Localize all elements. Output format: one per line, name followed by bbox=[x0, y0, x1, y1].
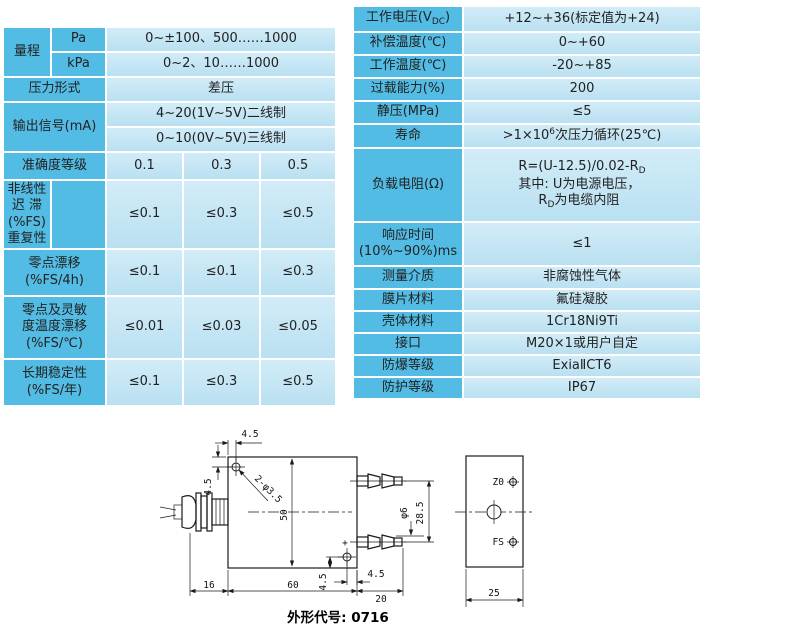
output-signal-label: 输出信号(mA) bbox=[3, 102, 106, 152]
static-pressure-label: 静压(MPa) bbox=[353, 101, 463, 124]
cable-gland bbox=[160, 493, 228, 531]
housing-value: 1Cr18Ni9Ti bbox=[463, 311, 701, 333]
output-signal-value-2: 0~10(0V~5V)三线制 bbox=[106, 127, 336, 152]
side-view: Z0 FS 25 bbox=[455, 456, 535, 607]
nonlinearity-value-3: ≤0.5 bbox=[260, 180, 336, 249]
zero-drift-label: 零点漂移 (%FS/4h) bbox=[3, 249, 106, 296]
op-temp-label: 工作温度(℃) bbox=[353, 55, 463, 78]
interface-label: 接口 bbox=[353, 333, 463, 355]
center-port bbox=[487, 500, 501, 524]
explosion-proof-label: 防爆等级 bbox=[353, 355, 463, 377]
nonlinearity-value-2: ≤0.3 bbox=[183, 180, 260, 249]
stability-label: 长期稳定性 (%FS/年) bbox=[3, 359, 106, 406]
svg-text:4.5: 4.5 bbox=[318, 573, 329, 590]
dim-hole-offset-right: 4.5 bbox=[334, 562, 385, 585]
temp-drift-value-3: ≤0.05 bbox=[260, 296, 336, 359]
stability-value-1: ≤0.1 bbox=[106, 359, 183, 406]
protection-class-value: IP67 bbox=[463, 377, 701, 399]
range-pa-value: 0~±100、500……1000 bbox=[106, 27, 336, 52]
svg-text:50: 50 bbox=[279, 509, 290, 521]
range-unit-kpa: kPa bbox=[51, 52, 106, 77]
temp-drift-value-1: ≤0.01 bbox=[106, 296, 183, 359]
dim-side-width: 25 bbox=[466, 569, 523, 607]
dim-port-length: 20 bbox=[375, 594, 387, 605]
range-kpa-value: 0~2、10……1000 bbox=[106, 52, 336, 77]
supply-voltage-value: +12~+36(标定值为+24) bbox=[463, 6, 701, 32]
fullscale-adjust-label: FS bbox=[493, 537, 505, 548]
dim-hole-offset-left: 4.5 bbox=[203, 445, 231, 496]
body-outline bbox=[228, 457, 357, 568]
accuracy-class-label: 准确度等级 bbox=[3, 152, 106, 180]
range-label: 量程 bbox=[3, 27, 51, 77]
medium-value: 非腐蚀性气体 bbox=[463, 266, 701, 289]
zero-drift-value-3: ≤0.3 bbox=[260, 249, 336, 296]
dim-hole-offset-bottom: 4.5 bbox=[318, 557, 342, 591]
dim-gland-length: 16 bbox=[203, 580, 215, 591]
zero-adjust-label: Z0 bbox=[493, 477, 505, 488]
dim-hole-offset-top: 4.5 bbox=[215, 429, 262, 461]
response-time-value: ≤1 bbox=[463, 222, 701, 266]
outline-drawing: + 4.5 4.5 2-φ3.5 5 bbox=[0, 425, 785, 638]
overload-label: 过载能力(%) bbox=[353, 78, 463, 101]
load-resistance-label: 负载电阻(Ω) bbox=[353, 148, 463, 222]
lifetime-label: 寿命 bbox=[353, 124, 463, 148]
pressure-type-label: 压力形式 bbox=[3, 77, 106, 102]
op-temp-value: -20~+85 bbox=[463, 55, 701, 78]
outline-code-caption: 外形代号: 0716 bbox=[287, 609, 389, 626]
svg-text:28.5: 28.5 bbox=[415, 502, 426, 525]
output-signal-value-1: 4~20(1V~5V)二线制 bbox=[106, 102, 336, 127]
zero-drift-value-2: ≤0.1 bbox=[183, 249, 260, 296]
load-formula-note-2: RD为电缆内阻 bbox=[518, 193, 645, 211]
svg-text:4.5: 4.5 bbox=[367, 569, 384, 580]
temp-drift-label: 零点及灵敏 度温度漂移 (%FS/℃) bbox=[3, 296, 106, 359]
accuracy-value-1: 0.1 bbox=[106, 152, 183, 180]
zero-drift-value-1: ≤0.1 bbox=[106, 249, 183, 296]
interface-value: M20×1或用户自定 bbox=[463, 333, 701, 355]
zero-adjust: Z0 bbox=[493, 476, 519, 488]
housing-label: 壳体材料 bbox=[353, 311, 463, 333]
spec-table-performance: 量程 Pa 0~±100、500……1000 kPa 0~2、10……1000 … bbox=[2, 26, 337, 407]
datasheet-page: 量程 Pa 0~±100、500……1000 kPa 0~2、10……1000 … bbox=[0, 0, 785, 638]
load-formula: R=(U-12.5)/0.02-RD bbox=[518, 159, 645, 177]
comp-temp-label: 补偿温度(℃) bbox=[353, 32, 463, 55]
dim-body-width: 60 bbox=[287, 580, 299, 591]
stability-value-3: ≤0.5 bbox=[260, 359, 336, 406]
dim-body-height: 50 bbox=[279, 459, 292, 566]
lifetime-value: >1×106次压力循环(25℃) bbox=[463, 124, 701, 148]
front-view: + 4.5 4.5 2-φ3.5 5 bbox=[160, 429, 434, 605]
protection-class-label: 防护等级 bbox=[353, 377, 463, 399]
spec-table-electrical: 工作电压(VDC) +12~+36(标定值为+24) 补偿温度(℃) 0~+60… bbox=[352, 5, 702, 400]
fullscale-adjust: FS bbox=[493, 536, 519, 548]
supply-voltage-label: 工作电压(VDC) bbox=[353, 6, 463, 32]
positive-port-mark: + bbox=[342, 538, 348, 549]
explosion-proof-value: ExiaⅡCT6 bbox=[463, 355, 701, 377]
nonlinearity-label: 非线性 迟 滞(%FS) 重复性 bbox=[3, 180, 51, 249]
dim-mounting-holes: 2-φ3.5 bbox=[239, 470, 284, 505]
pressure-port-lower bbox=[350, 535, 406, 549]
overload-value: 200 bbox=[463, 78, 701, 101]
medium-label: 测量介质 bbox=[353, 266, 463, 289]
accuracy-value-2: 0.3 bbox=[183, 152, 260, 180]
static-pressure-value: ≤5 bbox=[463, 101, 701, 124]
accuracy-value-3: 0.5 bbox=[260, 152, 336, 180]
nonlinearity-value-1: ≤0.1 bbox=[106, 180, 183, 249]
svg-text:4.5: 4.5 bbox=[241, 429, 258, 440]
load-formula-note-1: 其中: U为电源电压， bbox=[518, 177, 645, 193]
nonlinearity-label-spacer bbox=[51, 180, 106, 249]
svg-text:25: 25 bbox=[488, 588, 499, 599]
load-resistance-value: R=(U-12.5)/0.02-RD 其中: U为电源电压， RD为电缆内阻 bbox=[463, 148, 701, 222]
svg-text:4.5: 4.5 bbox=[203, 478, 214, 495]
diaphragm-value: 氟硅凝胶 bbox=[463, 289, 701, 311]
pressure-type-value: 差压 bbox=[106, 77, 336, 102]
response-time-label: 响应时间 (10%~90%)ms bbox=[353, 222, 463, 266]
temp-drift-value-2: ≤0.03 bbox=[183, 296, 260, 359]
comp-temp-value: 0~+60 bbox=[463, 32, 701, 55]
pressure-port-upper bbox=[350, 474, 406, 488]
stability-value-2: ≤0.3 bbox=[183, 359, 260, 406]
svg-text:φ6: φ6 bbox=[399, 507, 410, 519]
diaphragm-label: 膜片材料 bbox=[353, 289, 463, 311]
range-unit-pa: Pa bbox=[51, 27, 106, 52]
